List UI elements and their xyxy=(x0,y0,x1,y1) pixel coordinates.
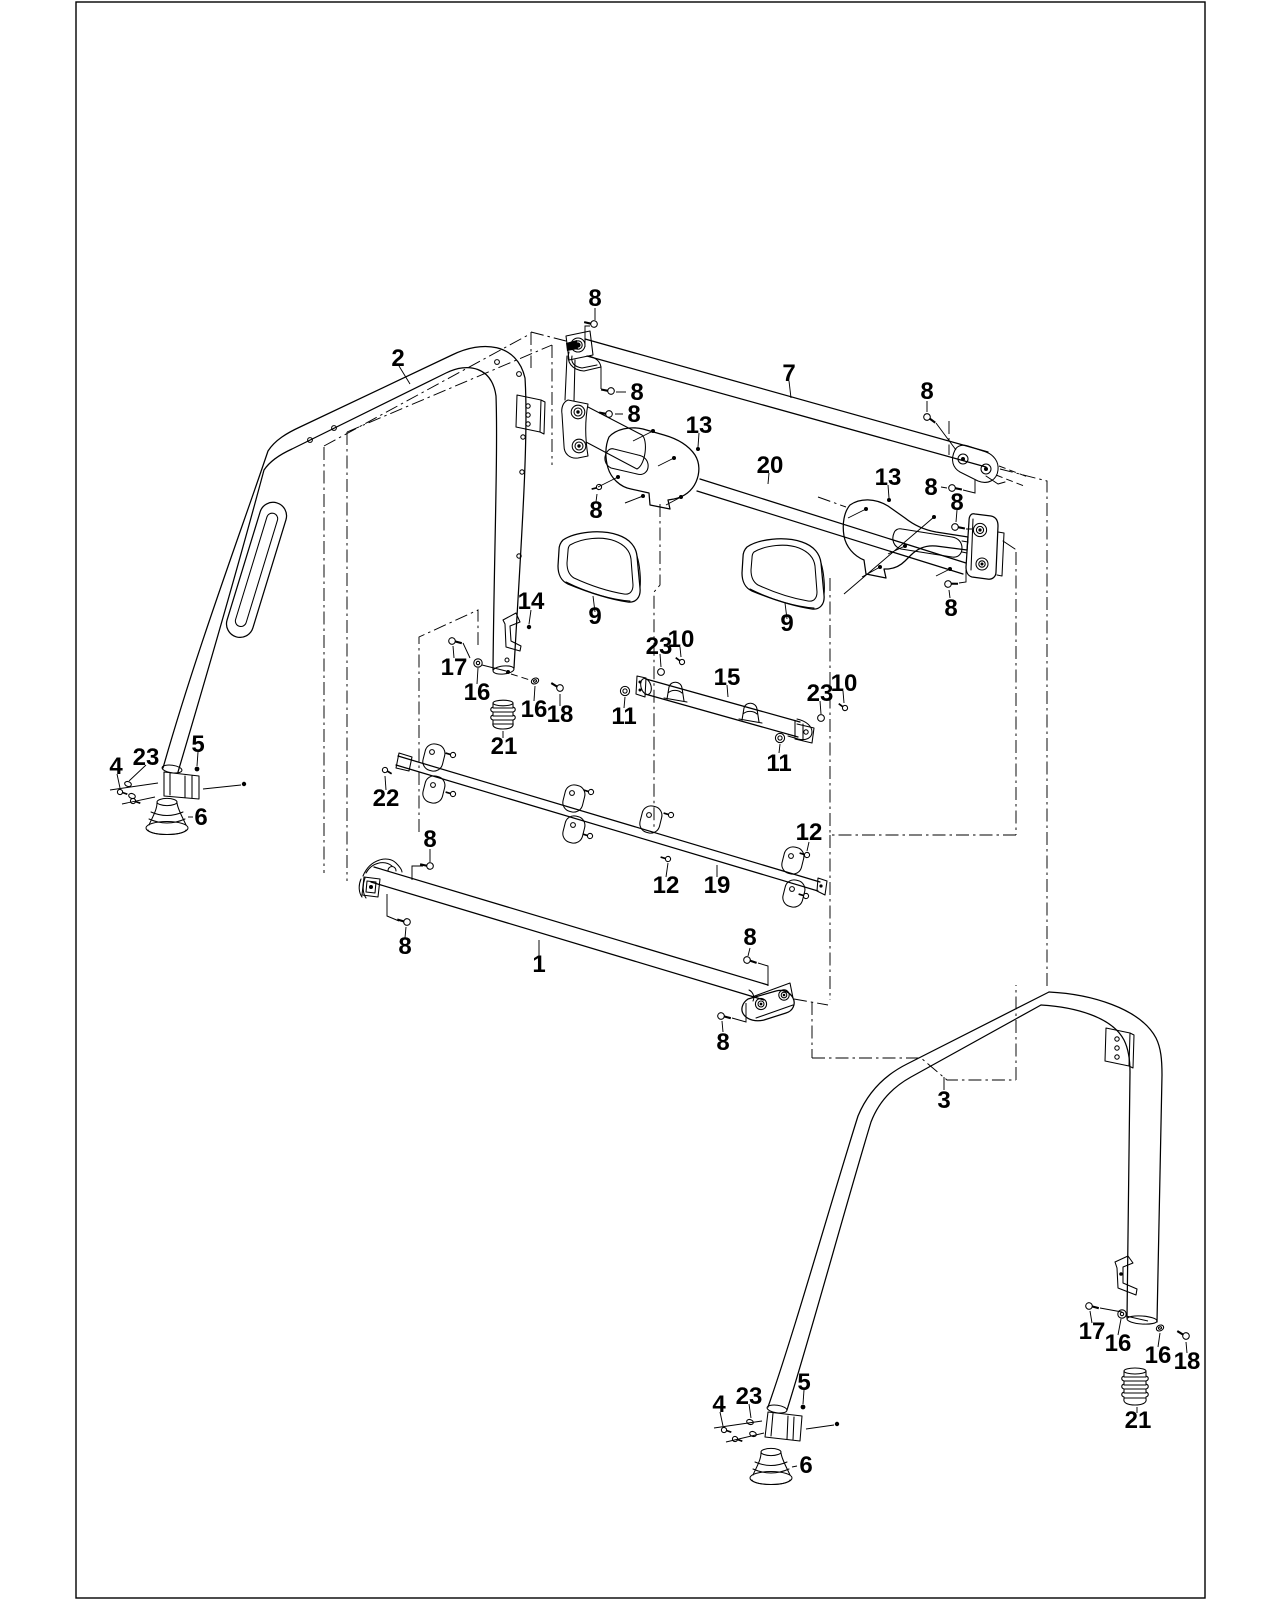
svg-text:6: 6 xyxy=(799,1452,812,1479)
svg-text:8: 8 xyxy=(924,474,937,501)
svg-text:14: 14 xyxy=(518,588,545,615)
svg-text:22: 22 xyxy=(373,785,400,812)
svg-text:4: 4 xyxy=(109,753,123,780)
svg-text:8: 8 xyxy=(589,497,602,524)
svg-text:3: 3 xyxy=(937,1087,950,1114)
svg-text:11: 11 xyxy=(611,703,636,730)
svg-text:8: 8 xyxy=(716,1029,729,1056)
svg-text:15: 15 xyxy=(714,664,741,691)
svg-text:8: 8 xyxy=(944,595,957,622)
svg-text:8: 8 xyxy=(950,489,963,516)
svg-text:5: 5 xyxy=(191,731,204,758)
svg-text:8: 8 xyxy=(627,401,640,428)
svg-text:10: 10 xyxy=(668,626,695,653)
svg-text:7: 7 xyxy=(782,360,795,387)
svg-text:16: 16 xyxy=(464,679,491,706)
svg-text:8: 8 xyxy=(743,924,756,951)
svg-text:8: 8 xyxy=(588,285,601,312)
svg-text:18: 18 xyxy=(1174,1348,1201,1375)
svg-text:13: 13 xyxy=(875,464,902,491)
svg-text:11: 11 xyxy=(766,750,791,777)
svg-text:1: 1 xyxy=(532,951,545,978)
svg-text:9: 9 xyxy=(588,603,601,630)
svg-text:9: 9 xyxy=(780,610,793,637)
svg-text:17: 17 xyxy=(1079,1318,1106,1345)
svg-text:10: 10 xyxy=(831,670,858,697)
svg-text:2: 2 xyxy=(391,345,404,372)
svg-text:21: 21 xyxy=(1125,1407,1152,1434)
svg-text:16: 16 xyxy=(521,696,548,723)
svg-text:21: 21 xyxy=(491,733,518,760)
svg-text:12: 12 xyxy=(653,872,680,899)
svg-text:16: 16 xyxy=(1105,1330,1132,1357)
svg-text:18: 18 xyxy=(547,701,574,728)
svg-text:6: 6 xyxy=(194,804,207,831)
svg-text:17: 17 xyxy=(441,654,468,681)
svg-text:19: 19 xyxy=(704,872,731,899)
svg-text:12: 12 xyxy=(796,819,823,846)
svg-text:8: 8 xyxy=(398,933,411,960)
svg-text:4: 4 xyxy=(712,1391,726,1418)
svg-text:8: 8 xyxy=(423,826,436,853)
svg-text:16: 16 xyxy=(1145,1342,1172,1369)
svg-text:23: 23 xyxy=(736,1383,763,1410)
svg-text:8: 8 xyxy=(920,378,933,405)
svg-text:23: 23 xyxy=(807,680,834,707)
svg-text:13: 13 xyxy=(686,412,713,439)
svg-text:23: 23 xyxy=(133,744,160,771)
svg-text:20: 20 xyxy=(757,452,784,479)
svg-text:5: 5 xyxy=(797,1369,810,1396)
